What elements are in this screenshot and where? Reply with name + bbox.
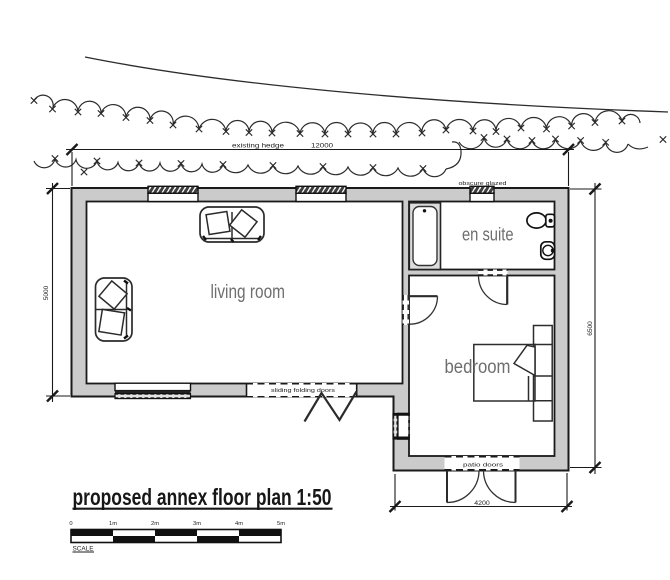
svg-text:patio doors: patio doors xyxy=(463,463,503,469)
svg-text:bedroom: bedroom xyxy=(445,357,511,378)
svg-text:4m: 4m xyxy=(235,521,243,527)
svg-text:3m: 3m xyxy=(193,521,201,527)
svg-text:1m: 1m xyxy=(109,521,117,527)
svg-text:living room: living room xyxy=(211,282,286,303)
svg-text:6500: 6500 xyxy=(587,321,594,336)
svg-text:4200: 4200 xyxy=(474,500,490,507)
svg-text:2m: 2m xyxy=(151,521,159,527)
svg-text:12000: 12000 xyxy=(311,143,334,150)
svg-text:5m: 5m xyxy=(277,521,285,527)
svg-text:5000: 5000 xyxy=(43,285,50,300)
svg-text:en suite: en suite xyxy=(462,225,514,245)
svg-text:proposed annex floor plan 1:50: proposed annex floor plan 1:50 xyxy=(73,484,332,510)
svg-text:sliding folding doors: sliding folding doors xyxy=(271,388,335,394)
svg-text:0: 0 xyxy=(69,521,72,527)
svg-text:existing hedge: existing hedge xyxy=(232,143,285,150)
svg-text:obscure glazed: obscure glazed xyxy=(459,181,507,187)
